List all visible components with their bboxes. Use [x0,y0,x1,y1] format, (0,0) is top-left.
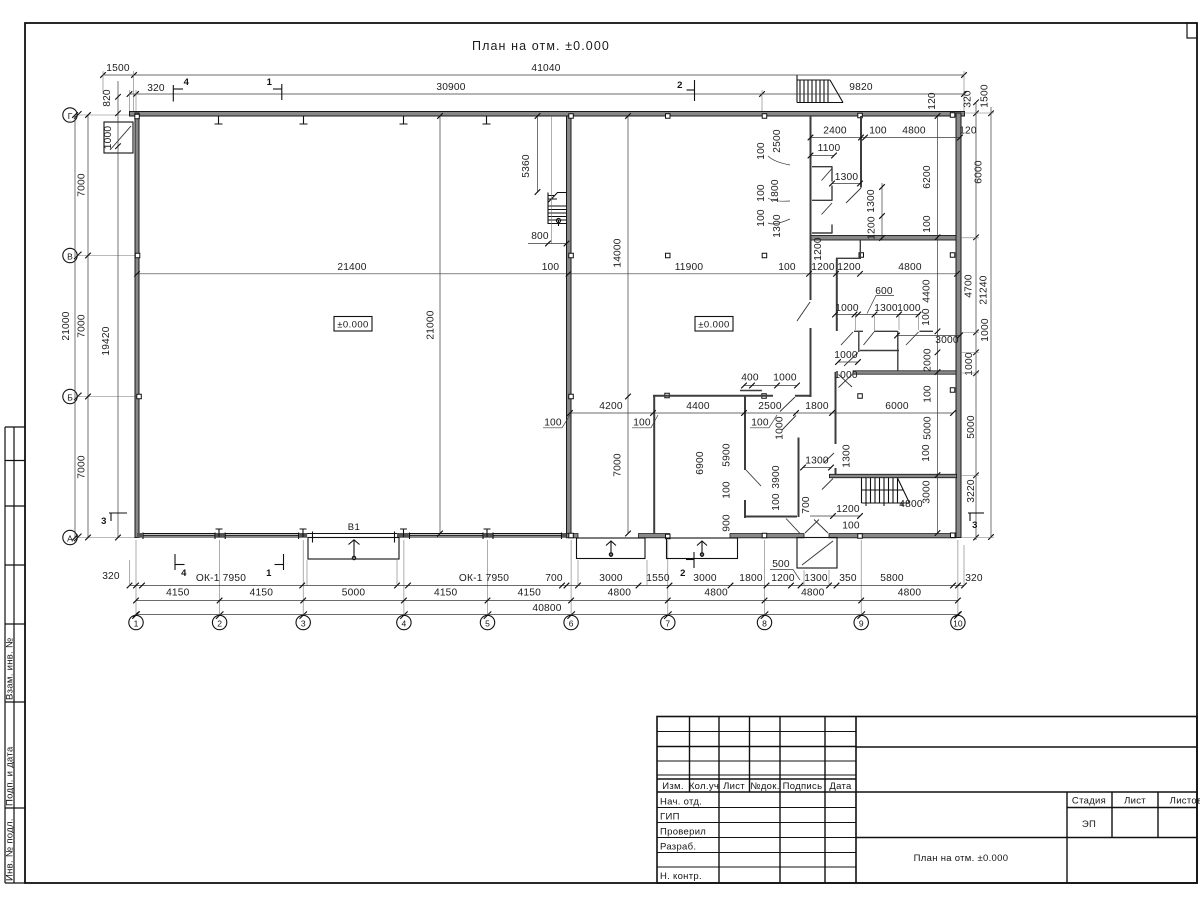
svg-text:9: 9 [859,619,864,629]
svg-text:2500: 2500 [758,401,782,412]
svg-text:Лист: Лист [723,781,745,792]
svg-text:4800: 4800 [898,262,922,273]
svg-text:4800: 4800 [898,588,922,599]
svg-text:320: 320 [965,573,983,584]
svg-text:4800: 4800 [801,588,825,599]
svg-text:6000: 6000 [885,401,909,412]
svg-text:1300: 1300 [866,189,877,213]
svg-text:7000: 7000 [77,455,88,479]
svg-text:41040: 41040 [531,63,560,74]
svg-text:Г: Г [68,111,73,121]
svg-text:5000: 5000 [966,415,977,439]
svg-text:А: А [67,534,73,544]
svg-text:3900: 3900 [771,465,782,489]
svg-text:21000: 21000 [61,311,72,340]
svg-text:7000: 7000 [77,173,88,197]
svg-text:Проверил: Проверил [660,827,706,838]
svg-text:Инв. № подл.: Инв. № подл. [5,818,16,881]
svg-text:100: 100 [756,184,767,202]
svg-text:19420: 19420 [101,326,112,355]
svg-text:100: 100 [751,418,769,429]
svg-text:14000: 14000 [613,238,624,267]
svg-text:7000: 7000 [77,314,88,338]
svg-text:Подп. и дата: Подп. и дата [5,746,16,806]
svg-text:4150: 4150 [250,588,274,599]
svg-text:1800: 1800 [739,573,763,584]
svg-text:700: 700 [545,573,563,584]
svg-text:6: 6 [569,619,574,629]
svg-text:100: 100 [842,521,860,532]
svg-text:800: 800 [531,231,549,242]
svg-text:№док.: №док. [750,781,779,792]
svg-text:ОК-1 7950: ОК-1 7950 [196,573,246,584]
svg-text:4200: 4200 [599,401,623,412]
svg-text:100: 100 [722,481,733,499]
svg-text:1300: 1300 [772,214,783,238]
svg-text:Подпись: Подпись [783,781,823,792]
svg-text:1000: 1000 [834,350,858,361]
svg-text:100: 100 [778,262,796,273]
svg-text:1000: 1000 [980,318,991,342]
svg-text:Разраб.: Разраб. [660,842,696,853]
svg-text:30900: 30900 [436,82,465,93]
svg-text:1200: 1200 [771,573,795,584]
svg-text:5900: 5900 [722,443,733,467]
svg-text:11900: 11900 [675,262,704,273]
svg-text:1300: 1300 [804,573,828,584]
svg-text:2400: 2400 [823,126,847,137]
svg-text:3: 3 [972,520,978,531]
svg-text:4400: 4400 [686,401,710,412]
svg-text:900: 900 [722,514,733,532]
svg-text:4: 4 [402,619,407,629]
svg-text:100: 100 [921,444,932,462]
svg-text:Дата: Дата [829,781,852,792]
svg-text:700: 700 [801,496,812,514]
svg-text:1000: 1000 [964,352,975,376]
svg-text:7: 7 [665,619,670,629]
svg-text:3000: 3000 [693,573,717,584]
svg-text:6000: 6000 [974,160,985,184]
svg-text:1200: 1200 [867,216,878,240]
svg-text:Стадия: Стадия [1072,796,1106,807]
svg-text:4150: 4150 [166,588,190,599]
svg-text:1200: 1200 [837,262,861,273]
svg-text:500: 500 [772,559,790,570]
svg-text:3220: 3220 [966,479,977,503]
svg-text:2: 2 [677,80,683,91]
svg-text:4400: 4400 [922,279,933,303]
svg-text:1000: 1000 [773,373,797,384]
svg-text:100: 100 [756,142,767,160]
svg-text:100: 100 [922,215,933,233]
svg-text:3000: 3000 [935,335,959,346]
svg-text:21240: 21240 [979,275,990,304]
svg-text:1000: 1000 [775,416,786,440]
svg-text:ОК-1 7950: ОК-1 7950 [459,573,509,584]
svg-text:1000: 1000 [897,303,921,314]
svg-text:100: 100 [542,262,560,273]
svg-text:1300: 1300 [874,303,898,314]
svg-text:4: 4 [184,77,190,88]
svg-text:5: 5 [485,619,490,629]
svg-text:5000: 5000 [342,588,366,599]
svg-text:21000: 21000 [426,310,437,339]
svg-text:4: 4 [181,568,187,579]
svg-text:Нач. отд.: Нач. отд. [660,797,702,808]
svg-text:1800: 1800 [770,179,781,203]
svg-text:5800: 5800 [880,573,904,584]
svg-text:320: 320 [102,571,120,582]
svg-text:ГИП: ГИП [660,812,680,823]
svg-text:2: 2 [217,619,222,629]
svg-text:4150: 4150 [518,588,542,599]
svg-text:5000: 5000 [923,416,934,440]
svg-text:350: 350 [839,573,857,584]
svg-text:3000: 3000 [922,480,933,504]
svg-text:100: 100 [923,385,934,403]
svg-text:План на отм. ±0.000: План на отм. ±0.000 [472,39,610,53]
svg-text:100: 100 [869,126,887,137]
svg-text:100: 100 [771,493,782,511]
svg-text:Н. контр.: Н. контр. [660,871,702,882]
svg-text:4800: 4800 [704,588,728,599]
svg-text:3: 3 [301,619,306,629]
svg-text:1200: 1200 [811,262,835,273]
svg-text:1800: 1800 [805,401,829,412]
svg-text:Взам. инв. №: Взам. инв. № [5,638,16,700]
svg-text:820: 820 [102,89,113,107]
svg-text:Изм.: Изм. [662,781,684,792]
svg-text:4150: 4150 [434,588,458,599]
svg-text:5360: 5360 [521,154,532,178]
svg-text:100: 100 [544,418,562,429]
svg-text:2000: 2000 [923,348,934,372]
svg-text:Лист: Лист [1124,796,1146,807]
svg-text:1500: 1500 [106,63,130,74]
svg-text:400: 400 [741,373,759,384]
svg-text:120: 120 [959,126,977,137]
svg-text:В1: В1 [348,522,360,533]
svg-text:1500: 1500 [980,84,991,108]
svg-text:4800: 4800 [608,588,632,599]
svg-text:4800: 4800 [902,126,926,137]
svg-text:7000: 7000 [613,453,624,477]
svg-text:±0.000: ±0.000 [698,320,729,331]
svg-text:В: В [67,252,73,262]
svg-text:100: 100 [921,308,932,326]
svg-text:ЭП: ЭП [1082,819,1096,830]
svg-text:6900: 6900 [695,451,706,475]
svg-text:1300: 1300 [835,172,859,183]
svg-text:21400: 21400 [337,262,366,273]
svg-text:8: 8 [762,619,767,629]
svg-text:1300: 1300 [842,444,853,468]
svg-text:40800: 40800 [532,603,561,614]
svg-text:3000: 3000 [599,573,623,584]
svg-text:Листов: Листов [1170,796,1200,807]
svg-text:2500: 2500 [772,129,783,153]
svg-text:1200: 1200 [813,237,824,261]
svg-text:Б: Б [67,393,73,403]
svg-text:±0.000: ±0.000 [337,320,368,331]
svg-text:4700: 4700 [964,274,975,298]
svg-text:План на отм. ±0.000: План на отм. ±0.000 [914,853,1009,864]
svg-text:1: 1 [267,77,273,88]
svg-text:3: 3 [101,516,107,527]
svg-text:10: 10 [953,619,963,629]
svg-text:1550: 1550 [646,573,670,584]
svg-text:1: 1 [134,619,139,629]
svg-text:1200: 1200 [836,504,860,515]
svg-text:100: 100 [756,209,767,227]
svg-text:320: 320 [147,83,165,94]
svg-text:9820: 9820 [849,82,873,93]
svg-text:2: 2 [680,568,686,579]
svg-text:4800: 4800 [899,499,923,510]
svg-text:320: 320 [963,90,974,108]
svg-text:100: 100 [633,418,651,429]
svg-text:120: 120 [927,92,938,110]
svg-text:Кол.уч: Кол.уч [689,781,719,792]
svg-text:1100: 1100 [818,143,841,154]
svg-text:1000: 1000 [835,303,859,314]
svg-text:1000: 1000 [103,126,114,150]
svg-text:1000: 1000 [834,370,858,381]
svg-text:6200: 6200 [922,165,933,189]
svg-text:1300: 1300 [805,456,829,467]
svg-text:1: 1 [266,568,272,579]
